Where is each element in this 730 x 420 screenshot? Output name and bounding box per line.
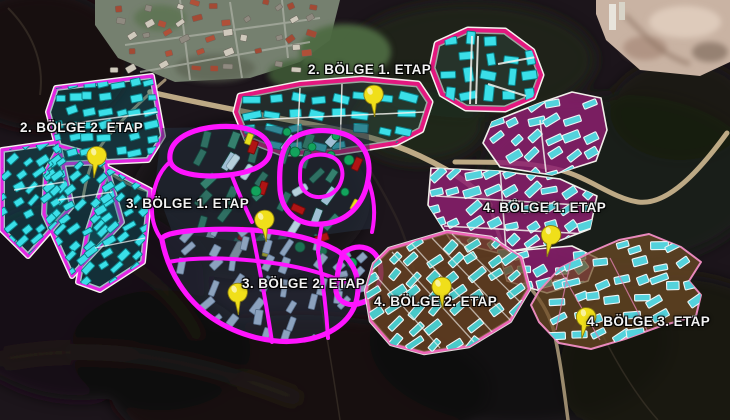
building-footprint bbox=[312, 96, 326, 104]
building-footprint bbox=[128, 123, 139, 129]
building-footprint bbox=[223, 64, 233, 69]
building-footprint bbox=[586, 291, 599, 300]
building-footprint bbox=[243, 96, 261, 103]
building-footprint bbox=[210, 66, 218, 72]
building-footprint bbox=[80, 133, 93, 142]
building-footprint bbox=[129, 48, 135, 54]
building-footprint bbox=[240, 34, 248, 42]
building-footprint bbox=[145, 5, 153, 12]
building-footprint bbox=[508, 68, 517, 85]
building-footprint bbox=[521, 70, 537, 81]
building-footprint bbox=[604, 295, 620, 304]
building-footprint bbox=[70, 93, 84, 101]
satellite-map[interactable]: 2. BÖLGE 1. ETAP 2. BÖLGE 2. ETAP 3. BÖL… bbox=[0, 0, 730, 420]
building-footprint bbox=[309, 4, 317, 10]
building-footprint bbox=[466, 31, 475, 44]
building-footprint bbox=[275, 61, 283, 67]
building-footprint bbox=[483, 84, 494, 101]
building-footprint bbox=[666, 281, 679, 290]
building-footprint bbox=[143, 32, 150, 38]
building-footprint bbox=[147, 135, 158, 143]
building-footprint bbox=[56, 95, 65, 101]
building-footprint bbox=[635, 294, 651, 301]
building-footprint bbox=[99, 92, 112, 101]
building-footprint bbox=[191, 65, 201, 71]
building-footprint bbox=[291, 67, 301, 72]
building-footprint bbox=[223, 28, 233, 36]
building-footprint bbox=[301, 49, 312, 56]
building-footprint bbox=[484, 36, 496, 46]
building-footprint bbox=[522, 204, 535, 213]
building-footprint bbox=[292, 44, 300, 50]
building-footprint bbox=[463, 67, 474, 83]
building-footprint bbox=[82, 92, 91, 100]
building-footprint bbox=[110, 68, 118, 73]
building-footprint bbox=[209, 3, 217, 9]
building-footprint bbox=[116, 146, 127, 155]
building-footprint bbox=[130, 77, 141, 87]
building-footprint bbox=[593, 258, 608, 266]
building-footprint bbox=[221, 19, 230, 26]
building-footprint bbox=[270, 94, 283, 103]
building-footprint bbox=[440, 71, 455, 78]
building-footprint bbox=[83, 122, 96, 129]
building-footprint bbox=[486, 53, 495, 66]
building-footprint bbox=[116, 17, 126, 25]
building-footprint bbox=[115, 6, 122, 13]
building-footprint bbox=[97, 134, 111, 141]
map-canvas bbox=[0, 0, 730, 420]
